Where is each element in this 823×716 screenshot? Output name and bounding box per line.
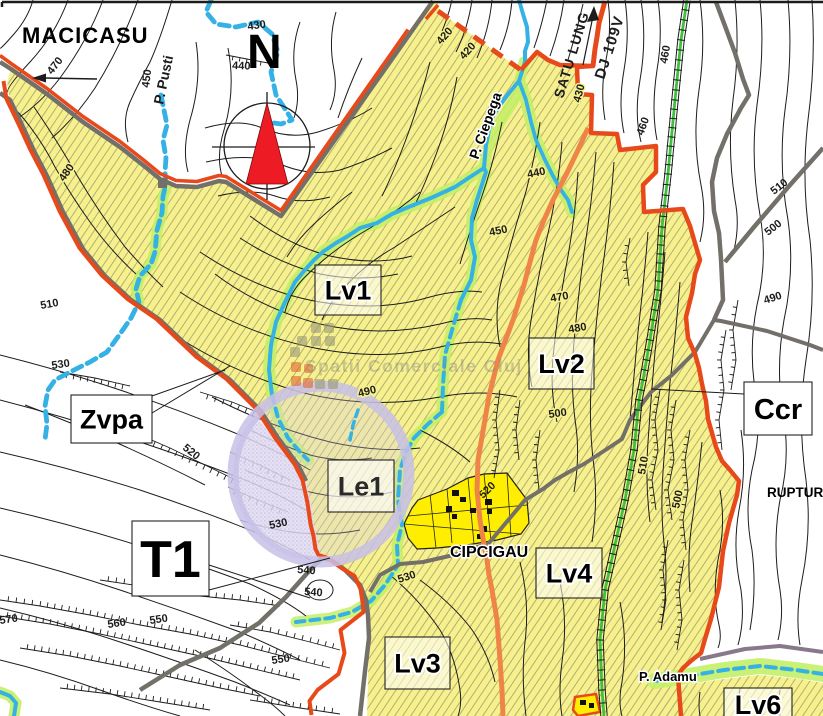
svg-text:540: 540 xyxy=(297,564,316,577)
svg-text:CIPCIGAU: CIPCIGAU xyxy=(450,544,528,561)
svg-text:RUPTUR: RUPTUR xyxy=(767,485,823,500)
svg-text:T1: T1 xyxy=(140,531,201,589)
svg-text:550: 550 xyxy=(149,613,169,627)
svg-text:500: 500 xyxy=(548,407,568,421)
svg-text:Lv4: Lv4 xyxy=(546,559,593,589)
svg-text:530: 530 xyxy=(51,358,71,372)
svg-text:P. Adamu: P. Adamu xyxy=(639,669,697,684)
svg-text:Lv2: Lv2 xyxy=(538,349,585,379)
svg-text:Lv1: Lv1 xyxy=(325,276,372,306)
svg-text:540: 540 xyxy=(304,586,323,599)
svg-text:550: 550 xyxy=(271,653,291,667)
svg-text:N: N xyxy=(247,26,282,79)
svg-text:570: 570 xyxy=(0,613,19,627)
svg-text:MACICASU: MACICASU xyxy=(22,23,149,48)
svg-text:Lv3: Lv3 xyxy=(394,649,441,679)
svg-text:Ccr: Ccr xyxy=(754,394,802,426)
svg-text:560: 560 xyxy=(107,617,127,631)
svg-text:450: 450 xyxy=(140,69,154,89)
svg-text:Lv6: Lv6 xyxy=(735,690,782,716)
svg-text:Spatii Comerciale Cluj: Spatii Comerciale Cluj xyxy=(305,356,523,376)
svg-text:Zvpa: Zvpa xyxy=(80,405,144,435)
svg-text:Le1: Le1 xyxy=(338,472,385,502)
